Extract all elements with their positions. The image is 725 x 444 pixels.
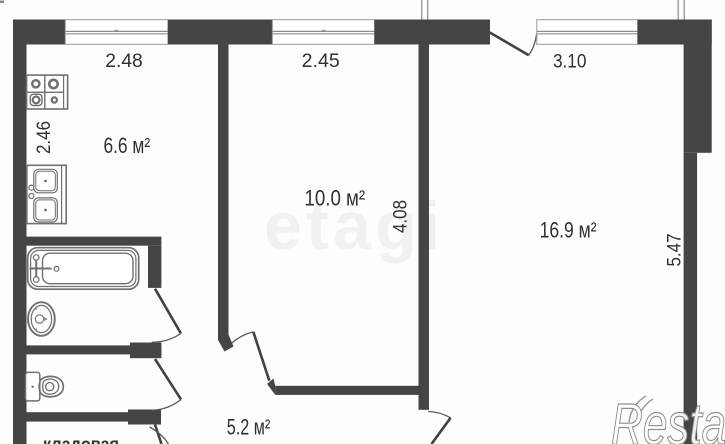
svg-text:16.9 м²: 16.9 м² [540, 217, 597, 242]
svg-text:10.0 м²: 10.0 м² [304, 186, 365, 211]
svg-text:2.46: 2.46 [34, 121, 55, 154]
svg-text:кладовая: кладовая [43, 435, 119, 444]
svg-text:2.48: 2.48 [105, 51, 143, 72]
svg-text:3.10: 3.10 [553, 51, 587, 72]
svg-text:Restate: Restate [611, 392, 725, 444]
svg-text:2.45: 2.45 [302, 51, 340, 72]
svg-text:5.47: 5.47 [665, 234, 686, 267]
svg-text:6.6 м²: 6.6 м² [103, 133, 150, 158]
svg-text:5.2 м²: 5.2 м² [227, 415, 271, 440]
svg-text:4.08: 4.08 [391, 200, 412, 233]
